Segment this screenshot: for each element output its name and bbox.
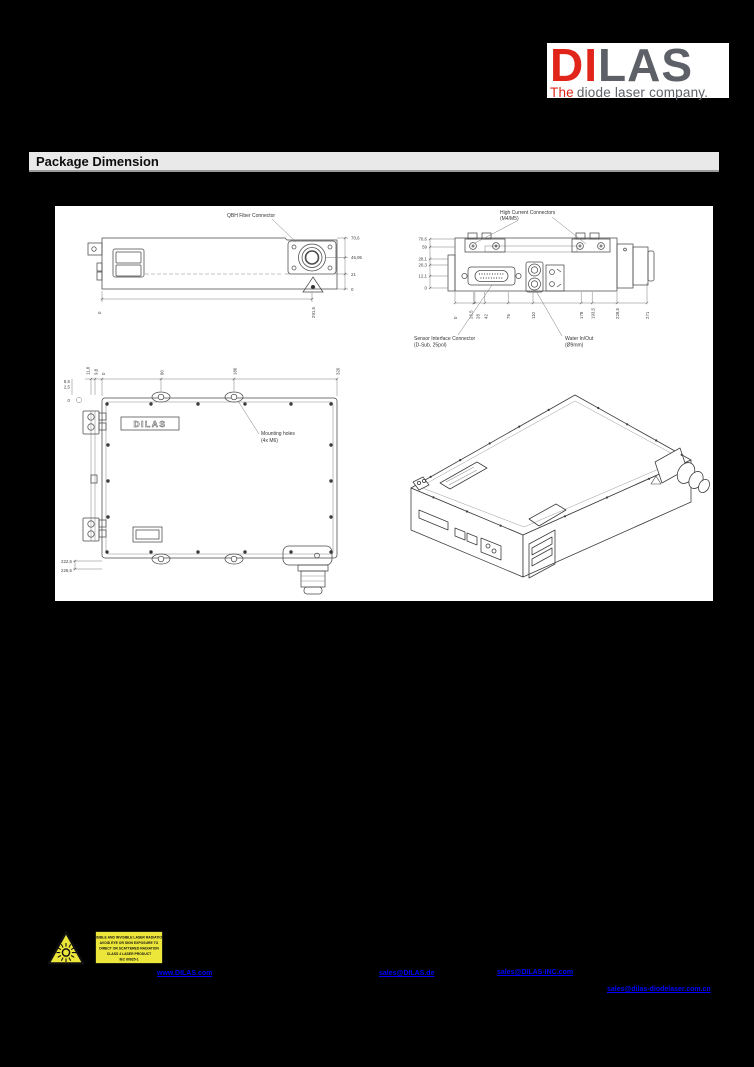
leader-line [238,401,259,434]
dim-ticks [429,238,648,304]
mounting-holes-sublabel: (4x M6) [261,438,278,444]
dim-label: 80 [160,370,165,375]
laser-warning-label: VISIBLE AND INVISIBLE LASER RADIATION AV… [95,931,163,964]
dim-label: 0 [68,398,71,403]
leader-line [272,219,296,242]
datasheet-page: DILAS Thediode laser company. Package Di… [0,0,754,1067]
logo-wordmark: DILAS [550,44,726,86]
dim-label: 28,1 [418,257,427,262]
dim-label: 110 [531,311,536,319]
dim-label: 59 [422,245,427,250]
dim-label: 11,8 [86,366,91,375]
dim-label: 0 [453,316,458,319]
dim-ticks [74,378,338,570]
drawing-panel: 70,6 46,95 21 0 0 291,5 QBH Fiber Connec… [55,206,713,601]
rear-view-drawing: 70,6 59 28,1 20,3 12,1 0 0 26,5 28 42 75… [400,206,715,356]
dim-label: 8,5 [64,379,71,384]
dim-label: 46,95 [351,255,363,260]
dim-label: 70,6 [351,236,360,241]
engraved-brand-text: DILAS [134,419,167,429]
side-view-drawing: 70,6 46,95 21 0 0 291,5 QBH Fiber Connec… [55,206,385,346]
dim-label: 2,5 [64,385,71,390]
dim-label: 70,6 [418,237,427,242]
dim-label: 26,5 [469,310,474,319]
dim-label: 75 [506,314,511,319]
rear-view-dim-lines [430,239,647,303]
dim-label: 12,1 [418,274,427,279]
dim-label: 20,3 [418,263,427,268]
logo-tag-the: The [550,85,574,100]
isometric-view-drawing [393,370,713,601]
dim-label: 291,5 [311,306,316,318]
sensor-connector-sublabel: (D-Sub, 25pol) [414,343,447,349]
dim-label: 42 [484,314,489,319]
laser-warning-triangle-icon [47,929,85,967]
dim-label: 180 [233,367,238,375]
sensor-connector-label: Sensor Interface Connector [414,336,475,342]
water-sublabel: (Ø9mm) [565,343,584,349]
dim-label: 228,5 [61,568,73,573]
dim-label: 193,5 [591,307,596,319]
side-view-geometry [88,238,337,292]
dim-label: 0 [425,286,428,291]
sales-cn-email-link[interactable]: sales@dilas-diodelaser.com.cn [607,986,711,993]
dim-ticks [101,237,346,300]
logo-di: DI [550,39,598,91]
top-view-dim-lines [72,379,337,569]
rear-view-geometry [448,233,654,292]
isometric-geometry [411,395,712,578]
hc-connector-sublabel: (M4/M5) [500,216,519,222]
section-header-bar: Package Dimension [29,152,719,172]
dim-label: 271 [645,311,650,319]
dim-label: 0 [101,372,106,375]
dim-label: 21 [351,272,356,277]
fiber-connector-label: QBH Fiber Connector [227,213,275,219]
dim-label: 9,8 [94,368,99,375]
top-view-geometry [83,392,337,594]
mounting-holes-label: Mounting holes [261,431,295,437]
dilas-logo: DILAS Thediode laser company. [547,43,729,98]
logo-las: LAS [598,39,693,91]
dim-label: 228,5 [615,307,620,319]
website-link[interactable]: www.DILAS.com [157,970,212,977]
dim-label: 320 [336,367,341,375]
dim-label: 28 [476,314,481,319]
sales-de-email-link[interactable]: sales@DILAS.de [379,970,434,977]
warning-line: CLASS 4 LASER PRODUCT [107,952,152,956]
dim-label: 222,5 [61,559,73,564]
warning-line: VISIBLE AND INVISIBLE LASER RADIATION [95,936,163,940]
warning-line: IEC 60825-1 [119,958,138,962]
dim-label: 0 [97,311,102,314]
logo-tagline: Thediode laser company. [550,86,726,99]
sales-inc-email-link[interactable]: sales@DILAS-INC.com [497,969,573,976]
dim-label: 178 [579,311,584,319]
dim-label: 0 [351,287,354,292]
logo-tag-rest: diode laser company. [577,85,708,100]
water-label: Water In/Out [565,336,594,342]
warning-line: DIRECT OR SCATTERED RADIATION [99,947,159,951]
top-view-drawing: DILAS 11,8 9,8 0 80 180 320 8,5 2,5 0 22… [55,351,385,601]
section-title: Package Dimension [36,154,159,169]
warning-line: AVOID EYE OR SKIN EXPOSURE TO [100,941,159,945]
datum-circle [76,397,81,402]
